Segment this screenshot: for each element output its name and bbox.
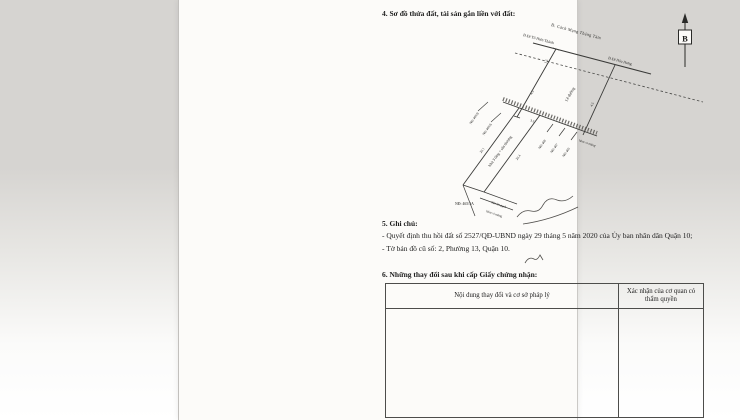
changes-table: Nội dung thay đổi và cơ sở pháp lý Xác n…	[385, 283, 704, 418]
neighbor-467-label: NĐ 467	[549, 143, 559, 154]
dim-sidewalk-right: 4.5	[589, 101, 595, 107]
sidewalk-label: Lề đường	[564, 86, 576, 102]
section5-notes: 5. Ghi chú: - Quyết định thu hồi đất số …	[382, 218, 708, 255]
dim-depth-left: 20.1	[479, 147, 486, 154]
sidewalk-line-right	[583, 65, 615, 135]
street-left-label: Đ.Đi Tô Hiến Thành	[523, 33, 555, 45]
house-label: Nhà 3 tầng + sân thượng	[488, 135, 513, 168]
neighbor-465-6-label: NĐ 465/6	[482, 123, 493, 136]
neighbor-469-label: NĐ 469	[537, 139, 547, 150]
col-header-confirmation: Xác nhận của cơ quan có thẩm quyền	[618, 284, 703, 308]
section6-title: 6. Những thay đổi sau khi cấp Giấy chứng…	[382, 270, 712, 279]
alley-front-label: hẻm xi măng	[579, 138, 597, 148]
neighbor-465-label: NĐ 465	[561, 147, 571, 158]
dim-sidewalk-left: 4.5	[529, 89, 535, 95]
front-boundary-line	[503, 102, 597, 136]
certificate-page: 4. Sơ đồ thửa đất, tài sản gắn liền với …	[178, 0, 578, 420]
note-decision: - Quyết định thu hồi đất số 2527/QĐ-UBND…	[382, 230, 708, 242]
empty-cell-confirmation	[618, 309, 703, 417]
north-arrow-icon: B	[679, 13, 692, 67]
handwritten-initials	[525, 255, 543, 263]
plot-right-edge	[484, 115, 540, 192]
empty-cell-content	[386, 309, 618, 417]
changes-table-header-row: Nội dung thay đổi và cơ sở pháp lý Xác n…	[386, 284, 703, 309]
changes-table-empty-row	[386, 309, 703, 417]
north-label: B	[682, 34, 688, 44]
neighbor-465-8-label: NĐ 465/8	[469, 112, 480, 125]
street-main-label: Đ. Cách Mạng Tháng Tám	[551, 22, 602, 40]
col-header-content: Nội dung thay đổi và cơ sở pháp lý	[386, 284, 618, 308]
dim-depth-right: 20.4	[515, 154, 522, 161]
street-right-label: Đ.Đi Hòa Hưng	[608, 56, 633, 66]
yard-label: Sân lót gạch	[491, 200, 508, 209]
plot-bottom-edge	[463, 185, 484, 192]
note-old-map: - Tờ bản đồ cũ số: 2, Phường 13, Quận 10…	[382, 243, 708, 255]
section5-title: 5. Ghi chú:	[382, 218, 708, 230]
